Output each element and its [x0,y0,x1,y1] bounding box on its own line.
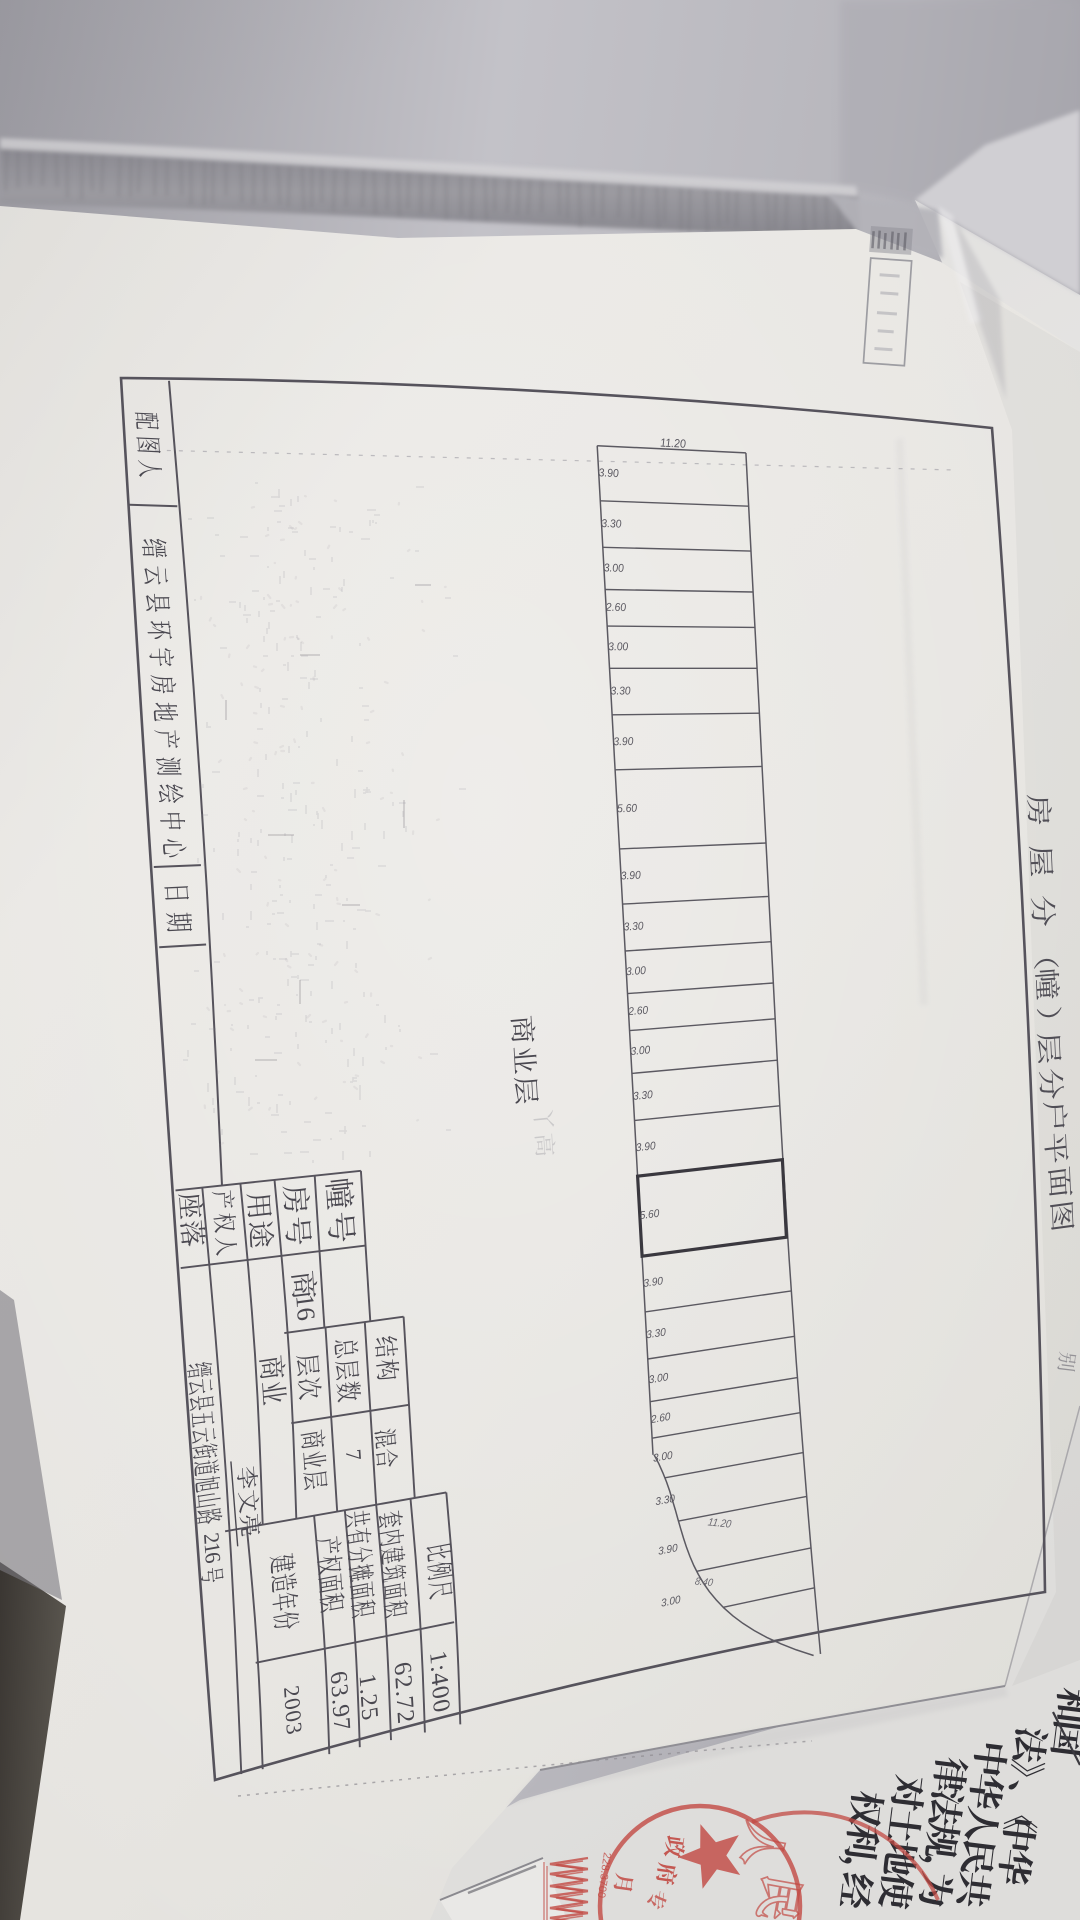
svg-text:216: 216 [199,1531,226,1566]
svg-text:3.30: 3.30 [633,1089,653,1103]
svg-text:5.60: 5.60 [617,802,638,815]
svg-text:3.00: 3.00 [608,641,629,654]
svg-text:3.90: 3.90 [636,1140,656,1155]
svg-text:3.90: 3.90 [598,467,619,480]
svg-text:62.72: 62.72 [389,1659,419,1726]
svg-text:63.97: 63.97 [325,1669,355,1735]
svg-text:11.20: 11.20 [660,437,687,451]
svg-text:16: 16 [290,1293,320,1323]
svg-text:3.00: 3.00 [603,562,624,575]
svg-text:3.90: 3.90 [643,1275,663,1290]
svg-text:2.60: 2.60 [605,601,627,614]
svg-text:5.60: 5.60 [639,1207,659,1222]
svg-text:1.25: 1.25 [354,1671,383,1723]
svg-text:11.20: 11.20 [707,1517,732,1531]
svg-text:2.60: 2.60 [627,1004,648,1018]
svg-text:3.30: 3.30 [601,518,622,531]
svg-text:3.30: 3.30 [610,685,631,698]
svg-text:8.40: 8.40 [694,1576,714,1589]
svg-text:3.90: 3.90 [621,869,642,882]
svg-text:3.30: 3.30 [623,920,644,934]
svg-text:1:400: 1:400 [424,1648,454,1716]
svg-text:3.90: 3.90 [613,735,634,748]
svg-text:3.00: 3.00 [626,964,647,978]
svg-text:3.00: 3.00 [630,1044,650,1058]
svg-text:2003: 2003 [279,1683,307,1737]
